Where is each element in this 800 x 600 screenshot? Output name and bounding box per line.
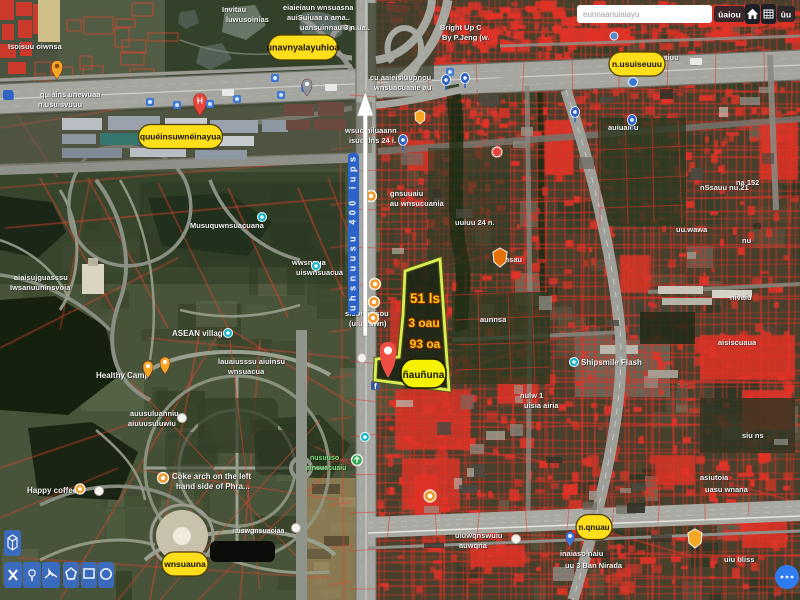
svg-text:siu ns: siu ns	[742, 431, 764, 440]
svg-text:93 oa: 93 oa	[410, 337, 441, 351]
svg-text:Invitau: Invitau	[222, 5, 247, 14]
svg-text:f: f	[374, 382, 377, 391]
svg-text:wsuciniluaann: wsuciniluaann	[344, 126, 397, 135]
svg-text:aiaisujguasssu: aiaisujguasssu	[14, 273, 68, 282]
svg-text:iaiswgnsuaciaa: iaiswgnsuaciaa	[233, 528, 284, 535]
svg-text:nulw 1: nulw 1	[520, 391, 543, 400]
svg-text:ñauñuna: ñauñuna	[403, 370, 445, 381]
svg-text:Coke arch on the left: Coke arch on the left	[172, 472, 251, 481]
svg-text:quiains unewuaa: quiains unewuaa	[40, 90, 101, 99]
svg-text:nu: nu	[742, 236, 752, 245]
svg-text:n.qnuau: n.qnuau	[578, 523, 609, 532]
svg-text:auwqna: auwqna	[459, 541, 488, 550]
svg-text:Healthy Camp: Healthy Camp	[96, 371, 149, 380]
svg-text:hand side of Phra...: hand side of Phra...	[176, 482, 250, 491]
svg-text:wnsuacuaaie au: wnsuacuaaie au	[373, 83, 432, 92]
svg-text:uiuwqnswuiu: uiuwqnswuiu	[455, 531, 503, 540]
svg-text:Iwsanuuninsvoia: Iwsanuuninsvoia	[10, 283, 71, 292]
svg-text:uu 3 Ban Nirada: uu 3 Ban Nirada	[565, 561, 623, 570]
svg-text:asiutoia: asiutoia	[700, 473, 729, 482]
svg-text:Musuquwnsuacuana: Musuquwnsuacuana	[190, 221, 265, 230]
svg-text:ûu: ûu	[781, 10, 791, 20]
svg-text:Bright Up C: Bright Up C	[440, 23, 482, 32]
svg-text:uisia airia: uisia airia	[524, 401, 559, 410]
svg-text:uansuinnau 3 n.ua..: uansuinnau 3 n.ua..	[300, 23, 370, 32]
svg-text:wnsuacua: wnsuacua	[227, 367, 265, 376]
svg-text:auusuluanniu: auusuluanniu	[130, 409, 179, 418]
svg-text:gnsuuaiu: gnsuuaiu	[390, 189, 424, 198]
svg-text:nusuuso: nusuuso	[310, 455, 339, 462]
svg-text:inaiaso naiu: inaiaso naiu	[560, 549, 604, 558]
svg-text:Shipsmile Flash: Shipsmile Flash	[581, 358, 642, 367]
svg-text:aiuuusuluwiu: aiuuusuluwiu	[128, 419, 176, 428]
svg-text:isudalns 24 i.: isudalns 24 i.	[349, 136, 396, 145]
svg-text:ainsuacuaiu: ainsuacuaiu	[306, 465, 346, 472]
svg-text:H: H	[197, 96, 203, 106]
svg-text:eunnaanuiaiayu: eunnaanuiaiayu	[583, 10, 640, 19]
svg-text:Happy coffee: Happy coffee	[27, 486, 78, 495]
svg-text:uiu bliss: uiu bliss	[724, 555, 754, 564]
svg-text:uu.wawa: uu.wawa	[676, 225, 708, 234]
svg-text:wwsnnua: wwsnnua	[291, 258, 327, 267]
svg-text:nivaiu: nivaiu	[730, 293, 752, 302]
svg-text:aisiscuaua: aisiscuaua	[718, 338, 757, 347]
svg-text:luwusoinias: luwusoinias	[226, 15, 269, 24]
svg-text:n.usuisvuuu: n.usuisvuuu	[38, 100, 83, 109]
svg-text:wnsuauna: wnsuauna	[163, 559, 206, 569]
svg-text:ASEAN village: ASEAN village	[172, 329, 228, 338]
svg-text:51 ls: 51 ls	[410, 291, 440, 306]
svg-text:auiSuiuaa a ama..: auiSuiuaa a ama..	[287, 13, 350, 22]
svg-text:By P.Jeng (w.: By P.Jeng (w.	[442, 33, 490, 42]
svg-text:lauaiusssu aiuinsu: lauaiusssu aiuinsu	[218, 357, 286, 366]
svg-text:aunnsa: aunnsa	[480, 315, 507, 324]
svg-text:Isoisuu oiwnsa: Isoisuu oiwnsa	[8, 42, 63, 51]
svg-text:cu aaieisiuupnou: cu aaieisiuupnou	[370, 73, 432, 82]
svg-text:ûaiou: ûaiou	[718, 10, 741, 20]
svg-text:eiaieiaun wnsuasna: eiaieiaun wnsuasna	[283, 3, 354, 12]
svg-text:unavnyalayuhioa: unavnyalayuhioa	[266, 43, 340, 53]
svg-text:uuiuu 24 n.: uuiuu 24 n.	[455, 218, 495, 227]
svg-text:na 152: na 152	[736, 178, 759, 187]
svg-text:uiswnsuacua: uiswnsuacua	[296, 268, 344, 277]
svg-text:quuéinsuwnéinayua: quuéinsuwnéinayua	[140, 132, 222, 142]
svg-text:3 oau: 3 oau	[408, 316, 439, 330]
svg-text:au wnsucuania: au wnsucuania	[390, 199, 445, 208]
svg-text:n.usuiseuuu: n.usuiseuuu	[612, 59, 662, 69]
svg-text:uasu wnana: uasu wnana	[705, 485, 749, 494]
